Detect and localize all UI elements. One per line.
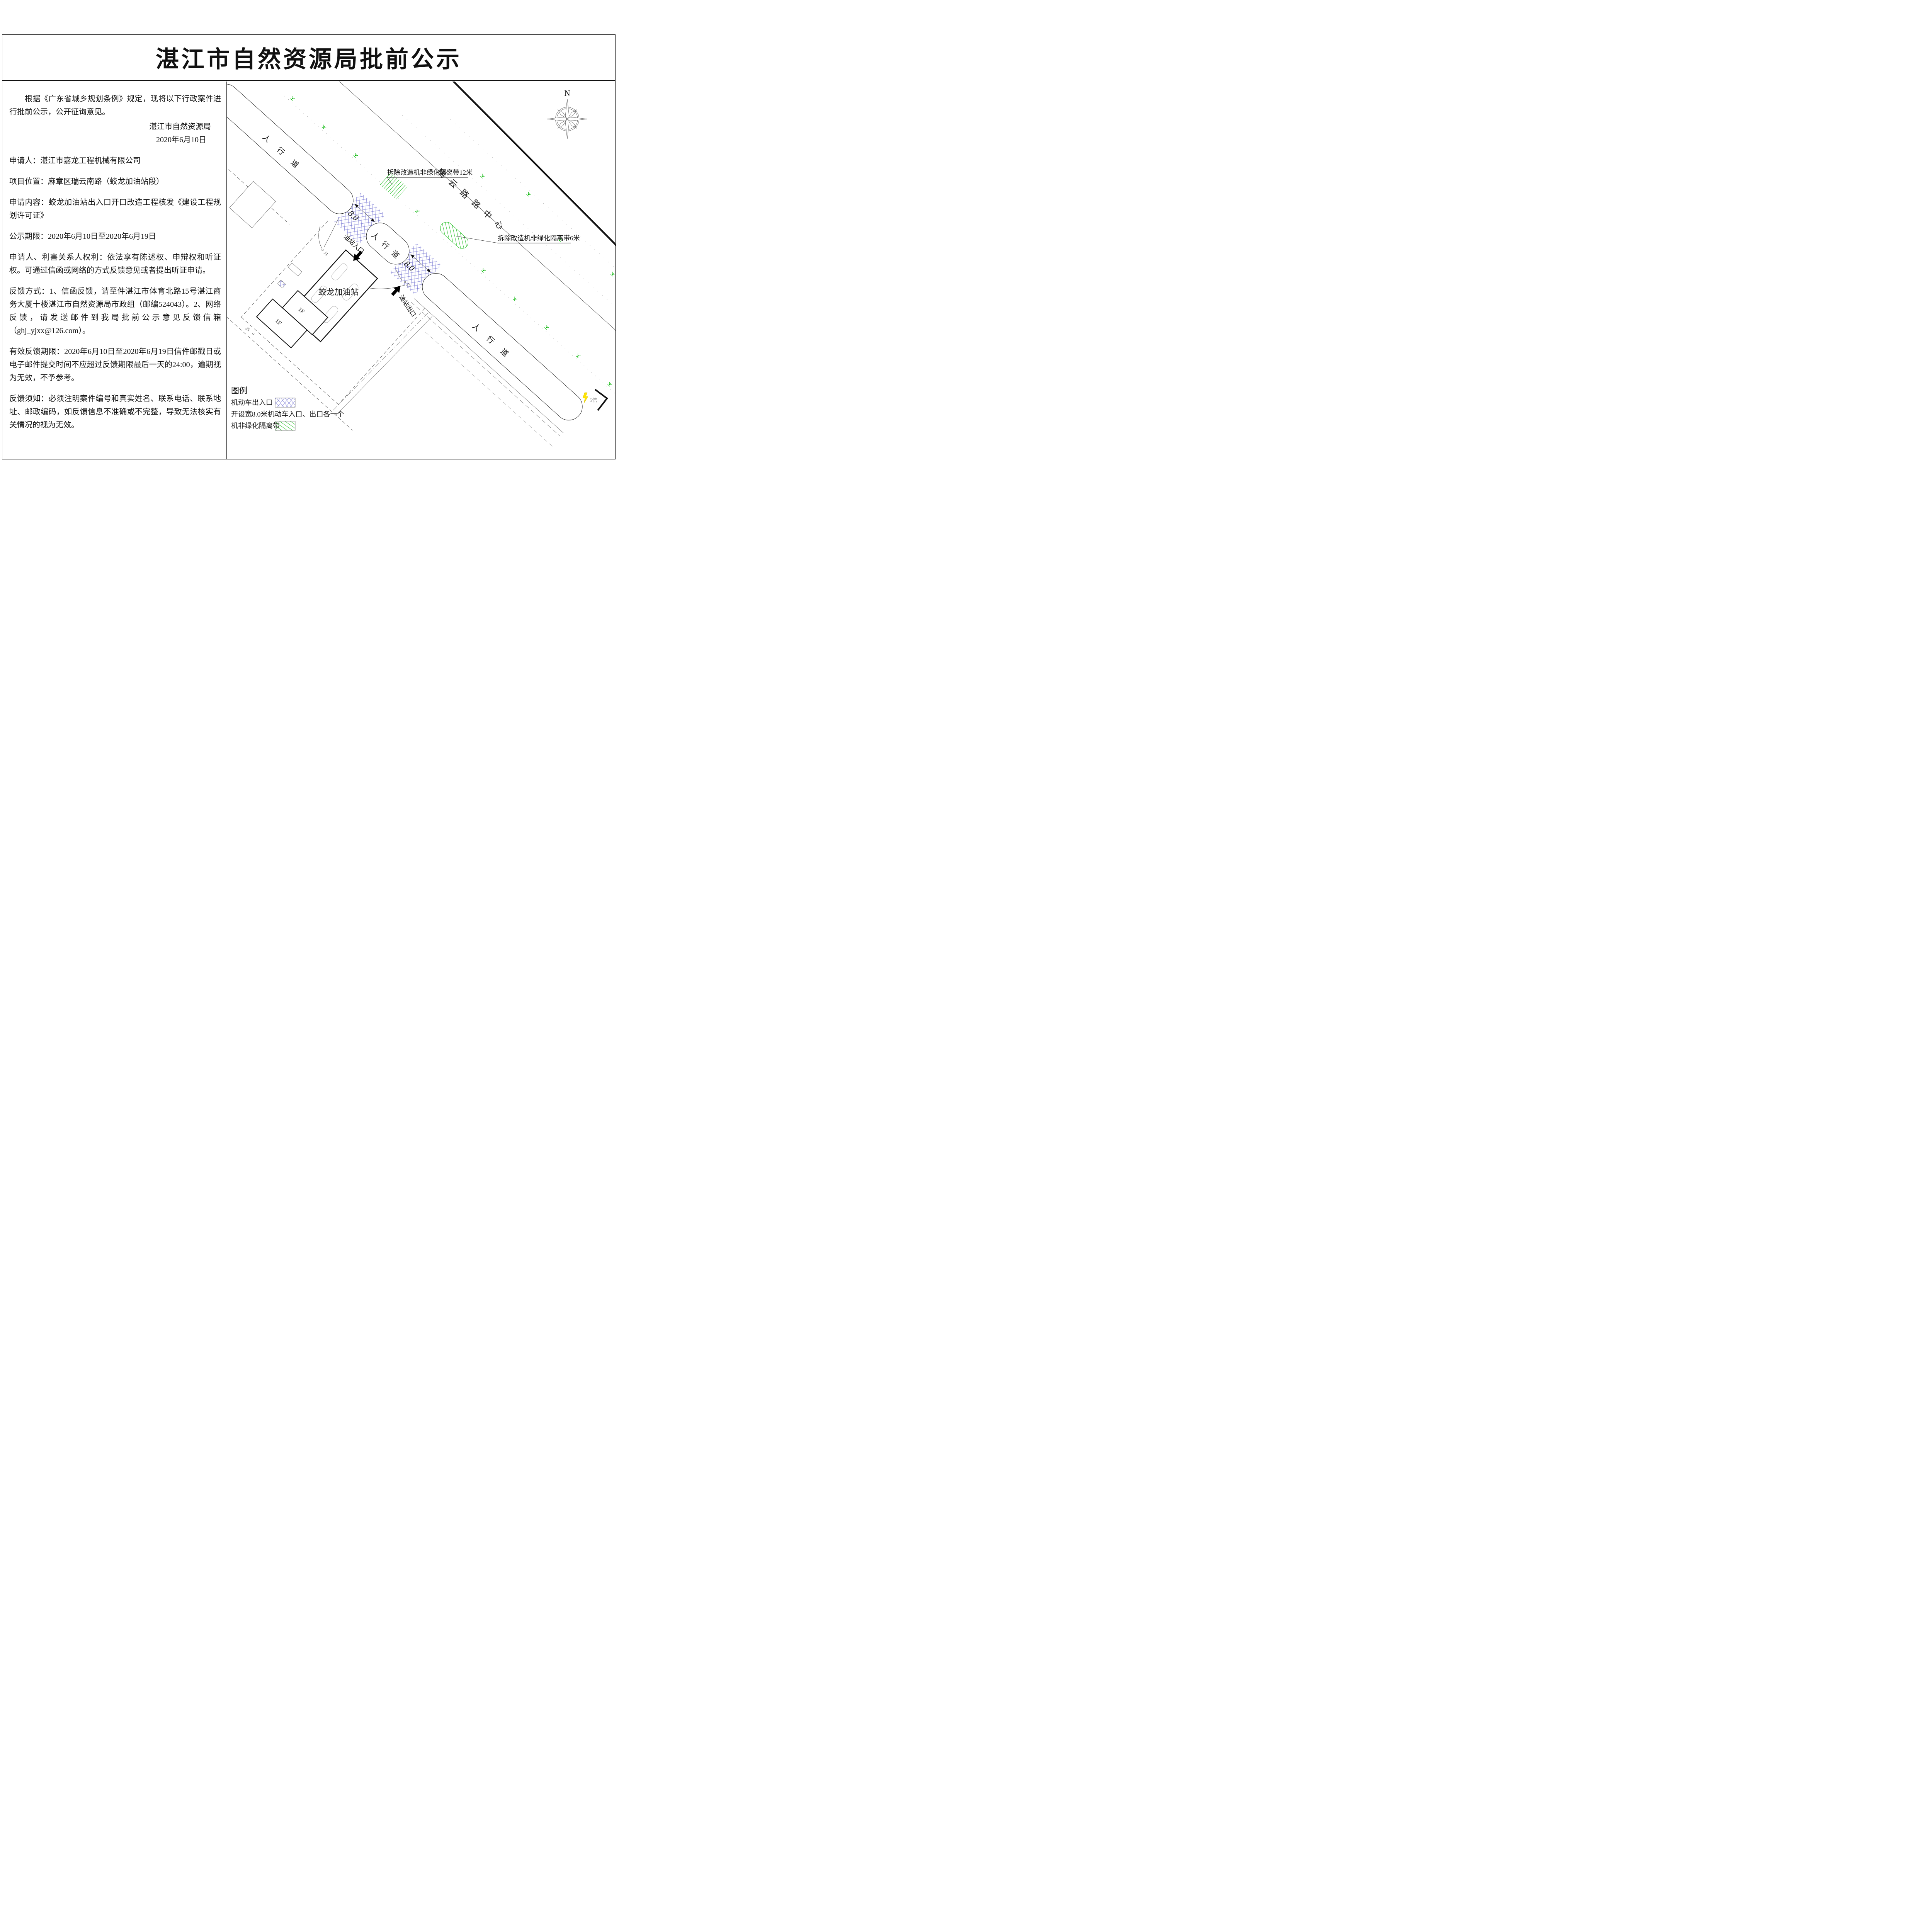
notice-intro: 根据《广东省城乡规划条例》规定，现将以下行政案件进行批前公示，公开征询意见。 <box>9 92 221 119</box>
site-plan-drawing: 瑞云路路中心 <box>227 82 616 459</box>
notice-text-panel: 根据《广东省城乡规划条例》规定，现将以下行政案件进行批前公示，公开征询意见。 湛… <box>2 82 227 459</box>
sign-board <box>288 263 302 276</box>
site-plan-panel: 瑞云路路中心 <box>227 82 616 459</box>
legend-vehicle-access-label: 机动车出入口 <box>231 399 273 406</box>
notice-location: 项目位置：麻章区瑞云南路（蛟龙加油站段） <box>9 175 221 188</box>
legend-crosshatch-swatch <box>275 398 295 407</box>
demolish-12m-label: 拆除改造机非绿化隔离带12米 <box>387 169 473 176</box>
adjacent-building <box>230 181 276 228</box>
north-label: N <box>564 88 570 98</box>
station-name-label: 蛟龙加油站 <box>318 287 359 297</box>
legend-title: 图例 <box>231 386 247 395</box>
notice-applicant: 申请人：湛江市嘉龙工程机械有限公司 <box>9 154 221 167</box>
page-title: 湛江市自然资源局批前公示 <box>156 41 462 74</box>
small-utility-box <box>277 280 286 288</box>
greenbelt-6m-island <box>438 219 471 251</box>
station-exit-label: 油站出口 <box>398 294 417 318</box>
junction-marker-icon <box>321 249 324 251</box>
parcel-side-line <box>336 313 432 419</box>
notice-feedback: 反馈方式：1、信函反馈，请至件湛江市体育北路15号湛江商务大厦十楼湛江市自然资源… <box>9 285 221 337</box>
notice-date: 2020年6月10日 <box>9 133 211 146</box>
title-bar: 湛江市自然资源局批前公示 <box>2 35 615 81</box>
notice-notes: 反馈须知：必须注明案件编号和真实姓名、联系电话、联系地址、邮政编码，如反馈信息不… <box>9 392 221 432</box>
legend-greenbelt-label: 机非绿化隔离带 <box>231 422 280 430</box>
demolish-6m-label: 拆除改造机非绿化隔离带6米 <box>498 235 580 242</box>
road-centerline <box>270 82 616 423</box>
road-redline-bold <box>449 82 616 248</box>
notice-request: 申请内容：蛟龙加油站出入口开口改造工程核发《建设工程规划许可证》 <box>9 196 221 222</box>
compass-rose-icon: N <box>547 88 587 139</box>
public-notice-page: 湛江市自然资源局批前公示 根据《广东省城乡规划条例》规定，现将以下行政案件进行批… <box>0 0 618 464</box>
notice-agency: 湛江市自然资源局 <box>9 120 211 133</box>
parcel-side-dashdot <box>332 309 428 415</box>
notice-rights: 申请人、利害关系人权利：依法享有陈述权、申辩权和听证权。可通过信函或网络的方式反… <box>9 251 221 277</box>
corner-note-label: 5信 <box>590 397 597 403</box>
legend-greenhatch-swatch <box>275 421 295 430</box>
junction-j5-label: J5 <box>244 326 251 333</box>
notice-deadline: 有效反馈期限：2020年6月10日至2020年6月19日信件邮戳日或电子邮件提交… <box>9 345 221 384</box>
notice-period: 公示期限：2020年6月10日至2020年6月19日 <box>9 230 221 243</box>
junction-j1-label: J1 <box>323 250 329 257</box>
legend-note: 开设宽8.0米机动车入口、出口各一个 <box>231 410 344 418</box>
page-frame: 湛江市自然资源局批前公示 根据《广东省城乡规划条例》规定，现将以下行政案件进行批… <box>2 34 616 459</box>
junction-marker-icon <box>252 332 255 335</box>
notice-signature: 湛江市自然资源局 2020年6月10日 <box>9 120 221 146</box>
power-bolt-icon <box>583 393 588 403</box>
curb-dotted-line <box>450 119 616 388</box>
legend: 图例 机动车出入口 开设宽8.0米机动车入口、出口各一个 机非绿化隔离带 <box>231 386 344 430</box>
